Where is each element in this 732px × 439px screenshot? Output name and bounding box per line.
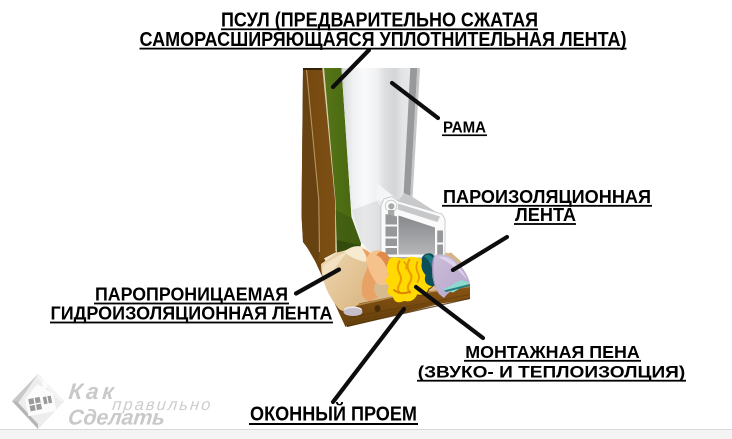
svg-text:Как: Как	[68, 379, 117, 404]
svg-text:ЛЕНТА: ЛЕНТА	[515, 204, 576, 225]
svg-text:МОНТАЖНАЯ ПЕНА: МОНТАЖНАЯ ПЕНА	[465, 342, 640, 362]
svg-text:(ЗВУКО- И ТЕПЛОИЗОЛЦИЯ): (ЗВУКО- И ТЕПЛОИЗОЛЦИЯ)	[418, 363, 686, 382]
svg-text:САМОРАСШИРЯЮЩАЯСЯ УПЛОТНИТЕЛЬН: САМОРАСШИРЯЮЩАЯСЯ УПЛОТНИТЕЛЬНАЯ ЛЕНТА)	[140, 29, 627, 51]
svg-text:РАМА: РАМА	[443, 120, 486, 137]
svg-text:ОКОННЫЙ ПРОЕМ: ОКОННЫЙ ПРОЕМ	[250, 401, 417, 425]
svg-text:ПАРОПРОНИЦАЕМАЯ: ПАРОПРОНИЦАЕМАЯ	[95, 284, 288, 305]
svg-text:ГИДРОИЗОЛЯЦИОННАЯ ЛЕНТА: ГИДРОИЗОЛЯЦИОННАЯ ЛЕНТА	[51, 303, 333, 324]
svg-text:Сделать: Сделать	[67, 405, 167, 430]
